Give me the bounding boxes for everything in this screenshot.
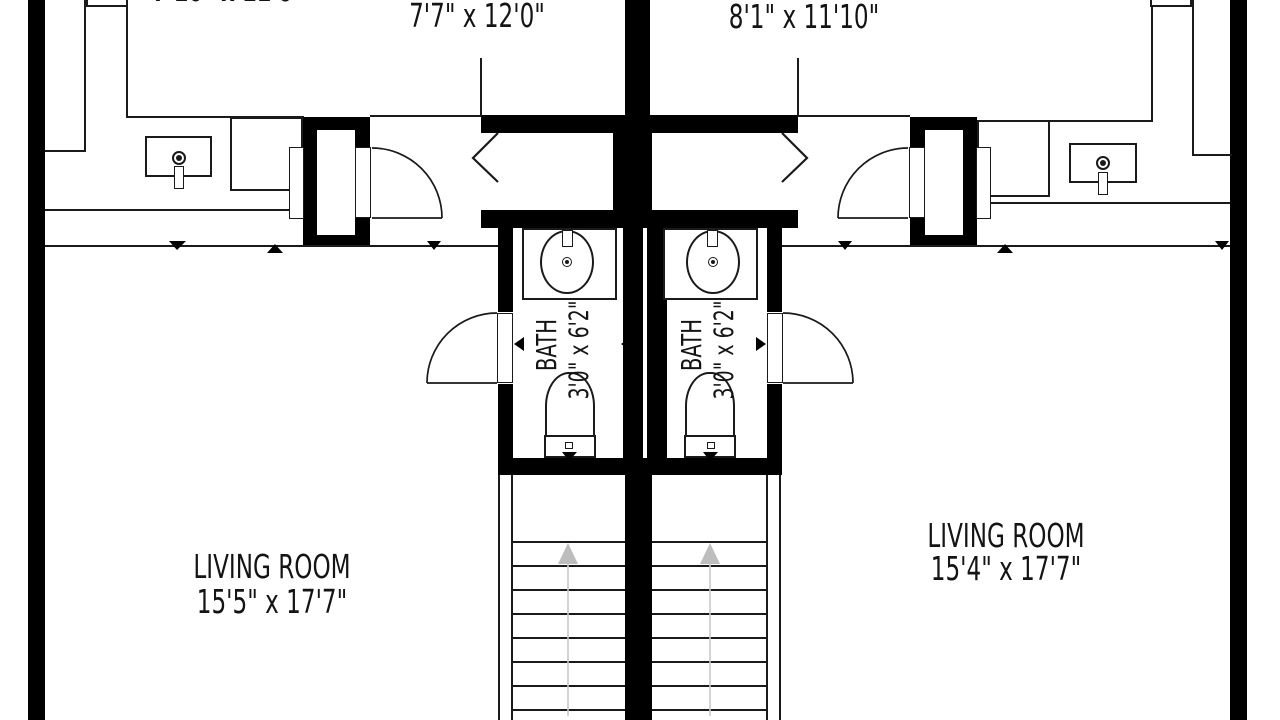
faucet-stem-left xyxy=(174,166,184,189)
stairs-right-outer-line xyxy=(779,475,781,720)
toilet-right-button xyxy=(707,442,715,449)
stair-tread xyxy=(513,541,625,543)
entry-door-panel-left xyxy=(355,147,371,218)
stairs-left-outer-line xyxy=(498,475,500,720)
stairs-left-inner-line xyxy=(511,475,513,720)
stairs-center-wall xyxy=(625,475,652,720)
hall-left-top-line xyxy=(370,115,482,117)
bedroom-right-dims-label: 8'1" x 11'10" xyxy=(682,0,927,35)
stair-up-arrow-right xyxy=(700,543,720,716)
bedroom-center-dims-label: 7'7" x 12'0" xyxy=(355,0,600,34)
stair-tread xyxy=(513,565,625,567)
stair-tread xyxy=(652,661,766,663)
bath-left-faucet xyxy=(562,230,573,247)
living-left-dims-label: 15'5" x 17'7" xyxy=(150,584,395,620)
bath-right-dims-label: 3'0" x 6'2" xyxy=(707,294,739,406)
bath-door-panel-left xyxy=(497,313,513,383)
hall-right-top-line xyxy=(797,115,910,117)
entry-door-arc-right xyxy=(838,148,908,218)
faucet-dot-right xyxy=(1100,160,1106,166)
stair-tread xyxy=(513,661,625,663)
stair-tread xyxy=(652,685,766,687)
wardrobe-left-line xyxy=(126,0,128,118)
bath-door-panel-right xyxy=(767,313,783,383)
vestibule-center-wall xyxy=(613,115,652,228)
entry-sidelight-left xyxy=(289,147,304,219)
stair-tread xyxy=(513,685,625,687)
entry-chevron-right xyxy=(782,133,807,182)
party-wall-top xyxy=(625,0,650,117)
hall-left-side-stub xyxy=(480,58,482,116)
toilet-left-button xyxy=(565,442,573,449)
floor-plan: 7'10" x 11'6" 7'7" x 12'0" 8'1" x 11'10"… xyxy=(0,0,1280,720)
entry-frame-right-core xyxy=(925,130,963,235)
entry-chevron-left xyxy=(473,133,498,182)
stair-tread xyxy=(513,709,625,711)
bath-bottom-band xyxy=(498,458,782,475)
stair-tread xyxy=(652,541,766,543)
threshold-line-right xyxy=(782,245,1230,247)
vestibule-band-top-right xyxy=(652,115,798,133)
outer-wall-left xyxy=(28,0,45,720)
bath-left-drain-dot xyxy=(565,260,569,264)
entry-door-arc-left xyxy=(372,148,442,218)
vestibule-band-top-left xyxy=(481,115,613,133)
stair-tread xyxy=(513,613,625,615)
stair-tread xyxy=(652,613,766,615)
closet-right-side-line xyxy=(1192,0,1194,156)
stairs-right-inner-line xyxy=(766,475,768,720)
bath-left-west-wall-upper xyxy=(498,210,513,312)
bath-door-arc-left xyxy=(427,313,497,383)
bath-right-name-label: BATH xyxy=(674,289,706,401)
stair-tread xyxy=(652,709,766,711)
bath-right-drain-dot xyxy=(711,260,715,264)
stair-tread xyxy=(513,589,625,591)
bath-left-name-label: BATH xyxy=(529,289,561,401)
stair-tread xyxy=(652,589,766,591)
bedroom-left-dims-label: 7'10" x 11'6" xyxy=(106,0,351,10)
outer-wall-right xyxy=(1230,0,1247,720)
bath-right-east-wall-upper xyxy=(767,210,782,312)
bath-right-faucet xyxy=(707,230,718,247)
counter-line-left-upper xyxy=(45,209,303,211)
entry-door-panel-right xyxy=(909,147,925,218)
living-right-dims-label: 15'4" x 17'7" xyxy=(884,551,1129,587)
counter-line-right-upper xyxy=(977,202,1230,204)
closet-left-side-line xyxy=(84,0,86,152)
faucet-stem-right xyxy=(1098,172,1108,195)
entry-sidelight-right xyxy=(976,147,991,219)
bath-left-dims-label: 3'0" x 6'2" xyxy=(562,294,594,406)
stair-tread xyxy=(652,637,766,639)
bath-door-marker xyxy=(756,337,766,351)
stair-tread xyxy=(652,565,766,567)
closet-left-bottom-line xyxy=(45,150,85,152)
living-left-name-label: LIVING ROOM xyxy=(150,549,395,585)
bath-door-marker xyxy=(514,337,524,351)
stair-up-arrow-left xyxy=(558,543,578,716)
faucet-dot-left xyxy=(176,155,182,161)
stair-tread xyxy=(513,637,625,639)
wardrobe-right-line xyxy=(1151,0,1153,122)
entry-frame-left-core xyxy=(317,130,355,235)
bath-center-wall-left xyxy=(623,228,643,458)
dresser-top-right xyxy=(1150,0,1192,7)
closet-right-bottom-line xyxy=(1192,154,1232,156)
hall-right-side-stub xyxy=(797,58,799,116)
threshold-line-left xyxy=(45,245,498,247)
bath-door-arc-right xyxy=(783,313,853,383)
